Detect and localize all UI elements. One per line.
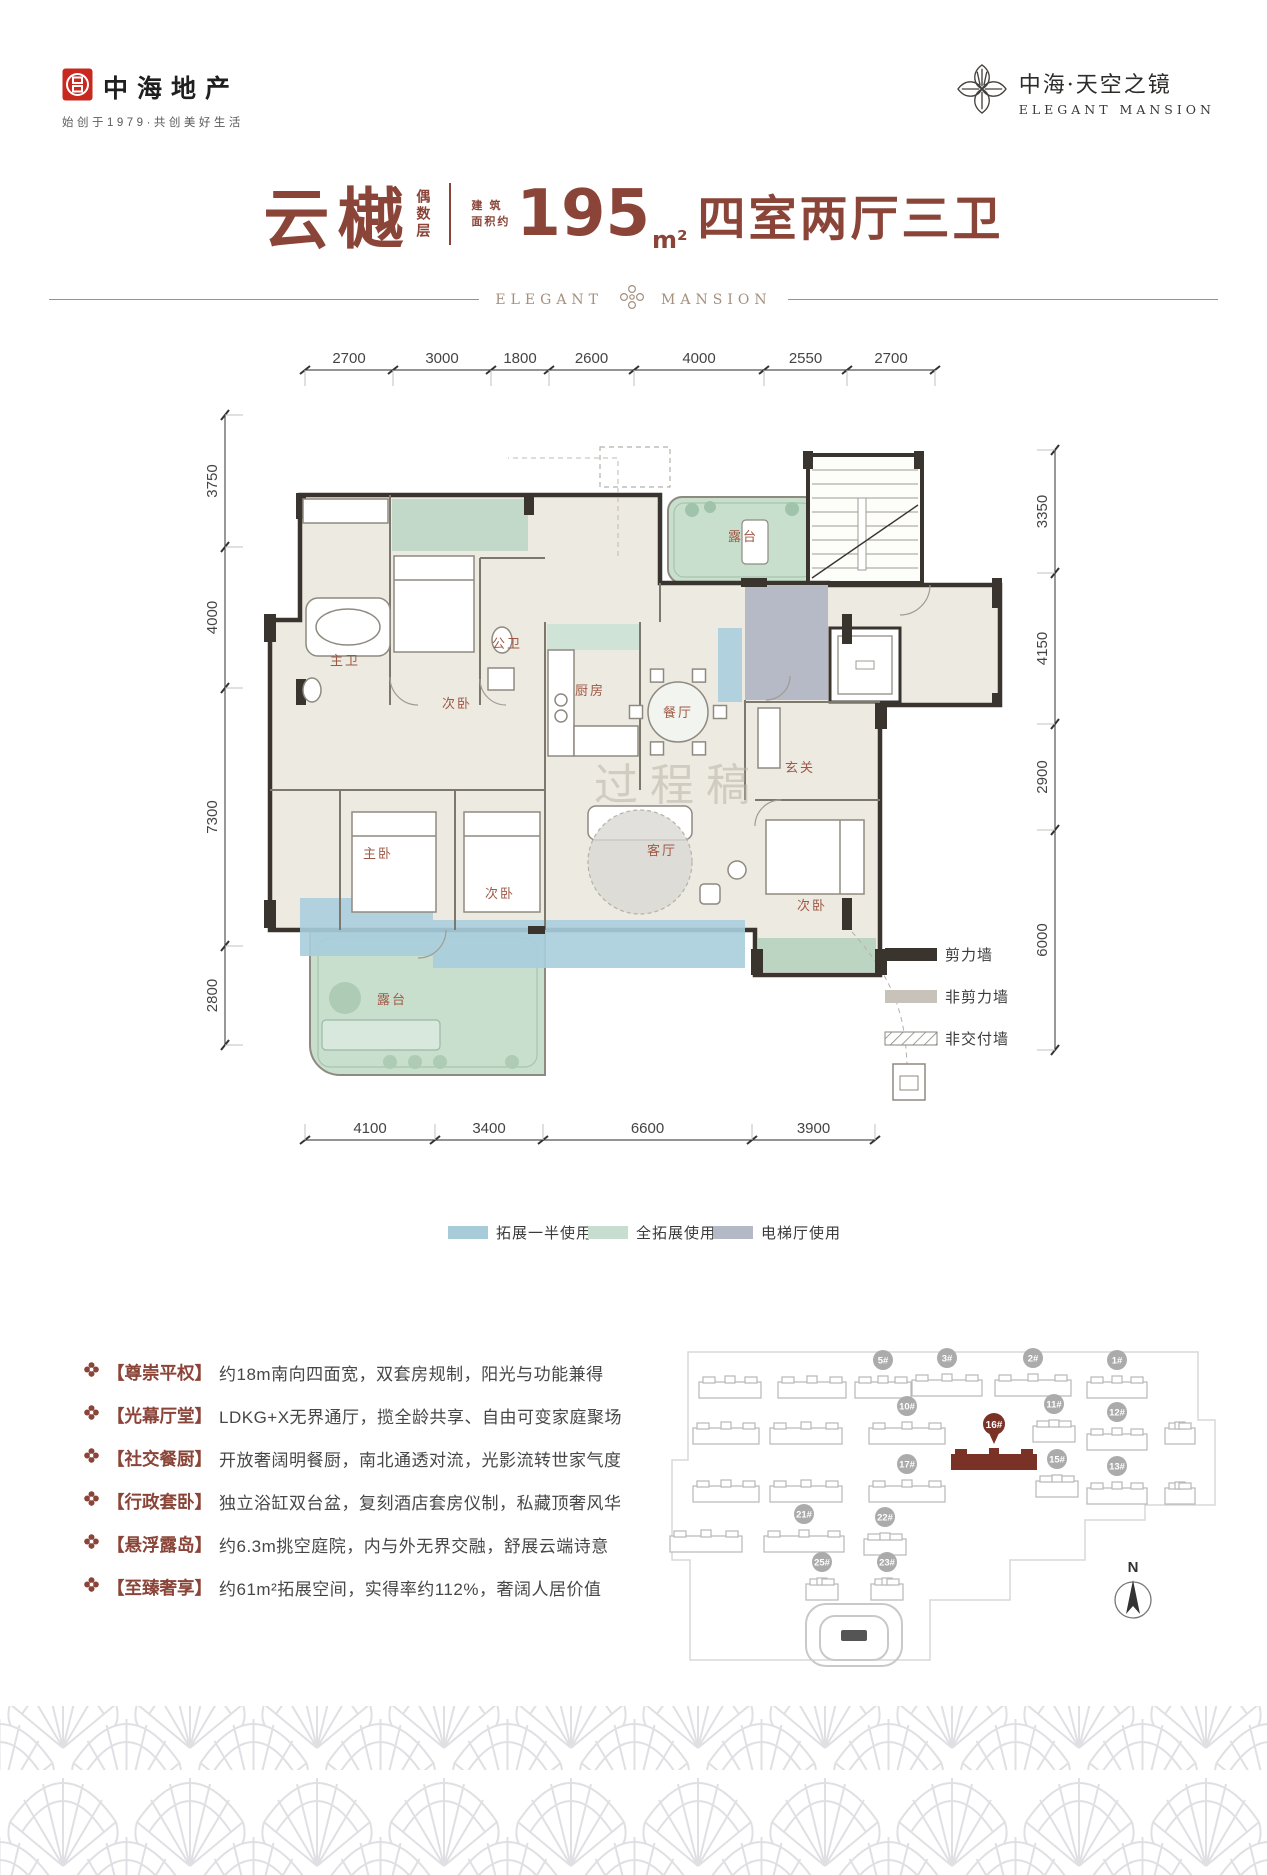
dim-label: 2550 (789, 350, 822, 367)
siteplan-badge: 15# (1047, 1449, 1067, 1469)
dim-label: 2600 (575, 350, 608, 367)
svg-text:17#: 17# (899, 1460, 916, 1471)
dim-label: 4100 (353, 1120, 386, 1137)
dim-label: 3350 (1034, 495, 1051, 528)
dim-label: 3750 (204, 464, 221, 497)
feature-text: 约18m南向四面宽，双套房规制，阳光与功能兼得 (219, 1360, 604, 1385)
siteplan-building (770, 1422, 842, 1444)
wall-legend-label: 非交付墙 (945, 1030, 1009, 1048)
room-label: 主卫 (330, 653, 360, 668)
siteplan-building (1087, 1376, 1147, 1398)
feature-head: 【社交餐厨】 (107, 1446, 212, 1471)
svg-text:11#: 11# (1046, 1400, 1062, 1411)
siteplan-building (693, 1422, 759, 1444)
svg-text:5#: 5# (878, 1356, 889, 1367)
flower-bullet-icon (84, 1362, 100, 1382)
svg-text:16#: 16# (986, 1420, 1003, 1431)
zone-legend-label: 电梯厅使用 (761, 1225, 841, 1242)
siteplan-building (1033, 1420, 1075, 1442)
floor-plan: 过程稿 露台主卫次卧公卫厨房餐厅玄关主卧次卧客厅次卧露台 27003000180… (204, 350, 1059, 1242)
siteplan-badge: 12# (1107, 1402, 1127, 1422)
dim-label: 7300 (204, 800, 221, 833)
feature-text: 独立浴缸双台盆，复刻酒店套房仪制，私藏顶奢风华 (219, 1489, 622, 1514)
siteplan-building (1087, 1482, 1147, 1504)
siteplan-building (1036, 1475, 1078, 1497)
room-label: 公卫 (492, 636, 522, 651)
svg-text:12#: 12# (1109, 1408, 1126, 1419)
siteplan-building (699, 1376, 761, 1398)
room-label: 次卧 (485, 886, 515, 901)
zone-legend-label: 拓展一半使用 (496, 1225, 592, 1242)
wall-legend-swatch (885, 948, 937, 961)
siteplan-building (995, 1374, 1071, 1396)
dim-label: 3900 (797, 1120, 830, 1137)
zone-legend-swatch (448, 1226, 488, 1239)
siteplan-building (1165, 1422, 1195, 1444)
dim-label: 2700 (874, 350, 907, 367)
page: 中海地产 始创于1979·共创美好生活 (0, 0, 1267, 1875)
dim-label: 3000 (425, 350, 458, 367)
feature-head: 【行政套卧】 (107, 1489, 212, 1514)
wall-legend-swatch (885, 990, 937, 1003)
siteplan-building (869, 1422, 945, 1444)
siteplan-badge: 13# (1107, 1456, 1127, 1476)
siteplan-building (693, 1480, 759, 1502)
siteplan-badge: 5# (873, 1350, 893, 1370)
svg-text:10#: 10# (899, 1402, 916, 1413)
siteplan-building (670, 1530, 742, 1552)
siteplan-badge: 1# (1107, 1350, 1127, 1370)
feature-head: 【尊崇平权】 (107, 1360, 212, 1385)
wall-legend-label: 剪力墙 (945, 947, 993, 964)
dim-label: 4000 (204, 601, 221, 634)
flower-bullet-icon (84, 1405, 100, 1425)
room-label: 露台 (728, 529, 758, 544)
feature-text: 开放奢阔明餐厨，南北通透对流，光影流转世家气度 (219, 1446, 622, 1471)
svg-text:13#: 13# (1109, 1462, 1126, 1473)
dim-label: 2700 (332, 350, 365, 367)
feature-text: 约6.3m挑空庭院，内与外无界交融，舒展云端诗意 (219, 1532, 609, 1557)
siteplan-badge: 2# (1023, 1348, 1043, 1368)
room-label: 露台 (377, 992, 407, 1007)
feature-item: 【至臻奢享】 约61m²拓展空间，实得率约112%，奢阔人居价值 (84, 1575, 644, 1597)
svg-text:15#: 15# (1049, 1455, 1066, 1466)
siteplan-building (855, 1376, 911, 1398)
dim-label: 6000 (1034, 923, 1051, 956)
dim-label: 2800 (204, 979, 221, 1012)
siteplan-badge: 22# (875, 1507, 895, 1527)
siteplan: 5#3#2#1#10#11#12#16#17#15#13#21#22#25#23… (670, 1348, 1215, 1666)
svg-text:N: N (1128, 1559, 1139, 1576)
svg-text:22#: 22# (877, 1513, 894, 1524)
siteplan-building (912, 1374, 982, 1396)
siteplan-badge: 21# (794, 1504, 814, 1524)
siteplan-badge: 3# (937, 1348, 957, 1368)
siteplan-building (806, 1578, 838, 1600)
siteplan-badge: 10# (897, 1396, 917, 1416)
room-label: 餐厅 (663, 705, 693, 720)
room-label: 厨房 (575, 683, 605, 698)
room-label: 次卧 (442, 696, 472, 711)
flower-bullet-icon (84, 1577, 100, 1597)
siteplan-building (871, 1578, 903, 1600)
wall-legend-label: 非剪力墙 (945, 989, 1009, 1006)
dim-label: 1800 (503, 350, 536, 367)
siteplan-building (764, 1530, 844, 1552)
zone-legend: 拓展一半使用全拓展使用电梯厅使用 (448, 1224, 841, 1242)
feature-list: 【尊崇平权】 约18m南向四面宽，双套房规制，阳光与功能兼得 【光幕厅堂】 LD… (84, 1360, 644, 1618)
flower-bullet-icon (84, 1448, 100, 1468)
feature-item: 【社交餐厨】 开放奢阔明餐厨，南北通透对流，光影流转世家气度 (84, 1446, 644, 1468)
siteplan-badge: 17# (897, 1454, 917, 1474)
svg-text:3#: 3# (942, 1354, 953, 1365)
siteplan-building (1165, 1482, 1195, 1504)
wall-legend-swatch (885, 1032, 937, 1045)
zone-legend-label: 全拓展使用 (636, 1224, 716, 1242)
room-label: 主卧 (363, 846, 393, 861)
feature-text: LDKG+X无界通厅，揽全龄共享、自由可变家庭聚场 (219, 1403, 622, 1428)
room-label: 玄关 (785, 760, 815, 775)
feature-head: 【至臻奢享】 (107, 1575, 212, 1600)
compass-icon: N (1115, 1559, 1151, 1618)
zone-legend-swatch (588, 1226, 628, 1239)
svg-text:1#: 1# (1112, 1356, 1123, 1367)
dim-label: 4000 (682, 350, 715, 367)
wall-legend: 剪力墙非剪力墙非交付墙 (885, 947, 1009, 1048)
flower-bullet-icon (84, 1491, 100, 1511)
watermark: 过程稿 (594, 761, 762, 810)
zone-legend-swatch (713, 1226, 753, 1239)
svg-text:21#: 21# (796, 1510, 813, 1521)
feature-text: 约61m²拓展空间，实得率约112%，奢阔人居价值 (219, 1575, 601, 1600)
siteplan-building (770, 1480, 842, 1502)
feature-item: 【悬浮露岛】 约6.3m挑空庭院，内与外无界交融，舒展云端诗意 (84, 1532, 644, 1554)
dim-label: 6600 (631, 1120, 664, 1137)
feature-head: 【光幕厅堂】 (107, 1403, 212, 1428)
fan-pattern-band (0, 1706, 1267, 1875)
dim-label: 3400 (472, 1120, 505, 1137)
feature-item: 【行政套卧】 独立浴缸双台盆，复刻酒店套房仪制，私藏顶奢风华 (84, 1489, 644, 1511)
siteplan-building (869, 1480, 945, 1502)
room-label: 客厅 (647, 843, 677, 858)
feature-item: 【尊崇平权】 约18m南向四面宽，双套房规制，阳光与功能兼得 (84, 1360, 644, 1382)
siteplan-badge: 23# (877, 1552, 897, 1572)
flower-bullet-icon (84, 1534, 100, 1554)
feature-head: 【悬浮露岛】 (107, 1532, 212, 1557)
siteplan-badge: 16# (983, 1413, 1005, 1444)
siteplan-building (864, 1533, 906, 1555)
feature-item: 【光幕厅堂】 LDKG+X无界通厅，揽全龄共享、自由可变家庭聚场 (84, 1403, 644, 1425)
svg-text:25#: 25# (814, 1558, 831, 1569)
svg-text:23#: 23# (879, 1558, 896, 1569)
siteplan-badge: 11# (1044, 1394, 1064, 1414)
dim-label: 4150 (1034, 632, 1051, 665)
siteplan-badge: 25# (812, 1552, 832, 1572)
siteplan-building (1087, 1428, 1147, 1450)
dim-label: 2900 (1034, 760, 1051, 793)
siteplan-building (778, 1376, 846, 1398)
siteplan-building-highlight (951, 1448, 1037, 1470)
svg-text:2#: 2# (1028, 1354, 1039, 1365)
room-label: 次卧 (797, 898, 827, 913)
